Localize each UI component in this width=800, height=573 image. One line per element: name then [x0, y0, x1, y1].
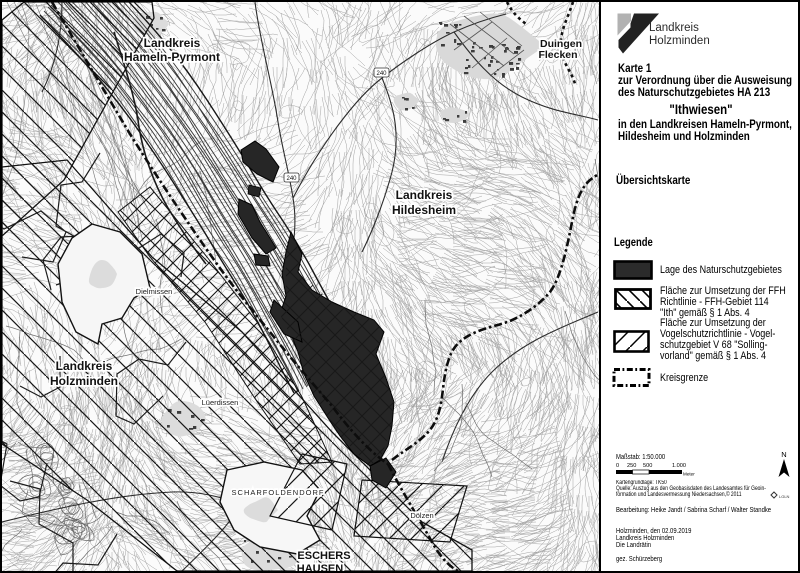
svg-text:Dölzen: Dölzen — [410, 511, 433, 520]
svg-text:LGLN: LGLN — [779, 494, 790, 499]
svg-text:250: 250 — [627, 463, 636, 469]
svg-text:Hameln-Pyrmont: Hameln-Pyrmont — [124, 50, 220, 64]
svg-text:Lüerdissen: Lüerdissen — [202, 398, 239, 407]
svg-text:SCHARFOLDENDORF: SCHARFOLDENDORF — [232, 488, 325, 497]
svg-text:500: 500 — [643, 463, 652, 469]
svg-text:1.000: 1.000 — [672, 463, 686, 469]
svg-text:HAUSEN: HAUSEN — [297, 563, 344, 571]
svg-text:Hildesheim: Hildesheim — [392, 203, 456, 217]
svg-text:Meter: Meter — [683, 472, 695, 477]
svg-text:Landkreis: Landkreis — [144, 36, 201, 50]
svg-text:Holzminden: Holzminden — [50, 374, 118, 388]
svg-text:Dielmissen: Dielmissen — [136, 287, 173, 296]
svg-text:ESCHERS: ESCHERS — [297, 550, 350, 562]
svg-text:Flecken: Flecken — [538, 49, 577, 61]
svg-text:0: 0 — [616, 463, 619, 469]
svg-text:Landkreis: Landkreis — [56, 359, 113, 373]
svg-text:Landkreis: Landkreis — [396, 188, 453, 202]
svg-text:N: N — [781, 450, 786, 459]
svg-text:240: 240 — [376, 71, 387, 77]
svg-text:240: 240 — [286, 176, 297, 182]
